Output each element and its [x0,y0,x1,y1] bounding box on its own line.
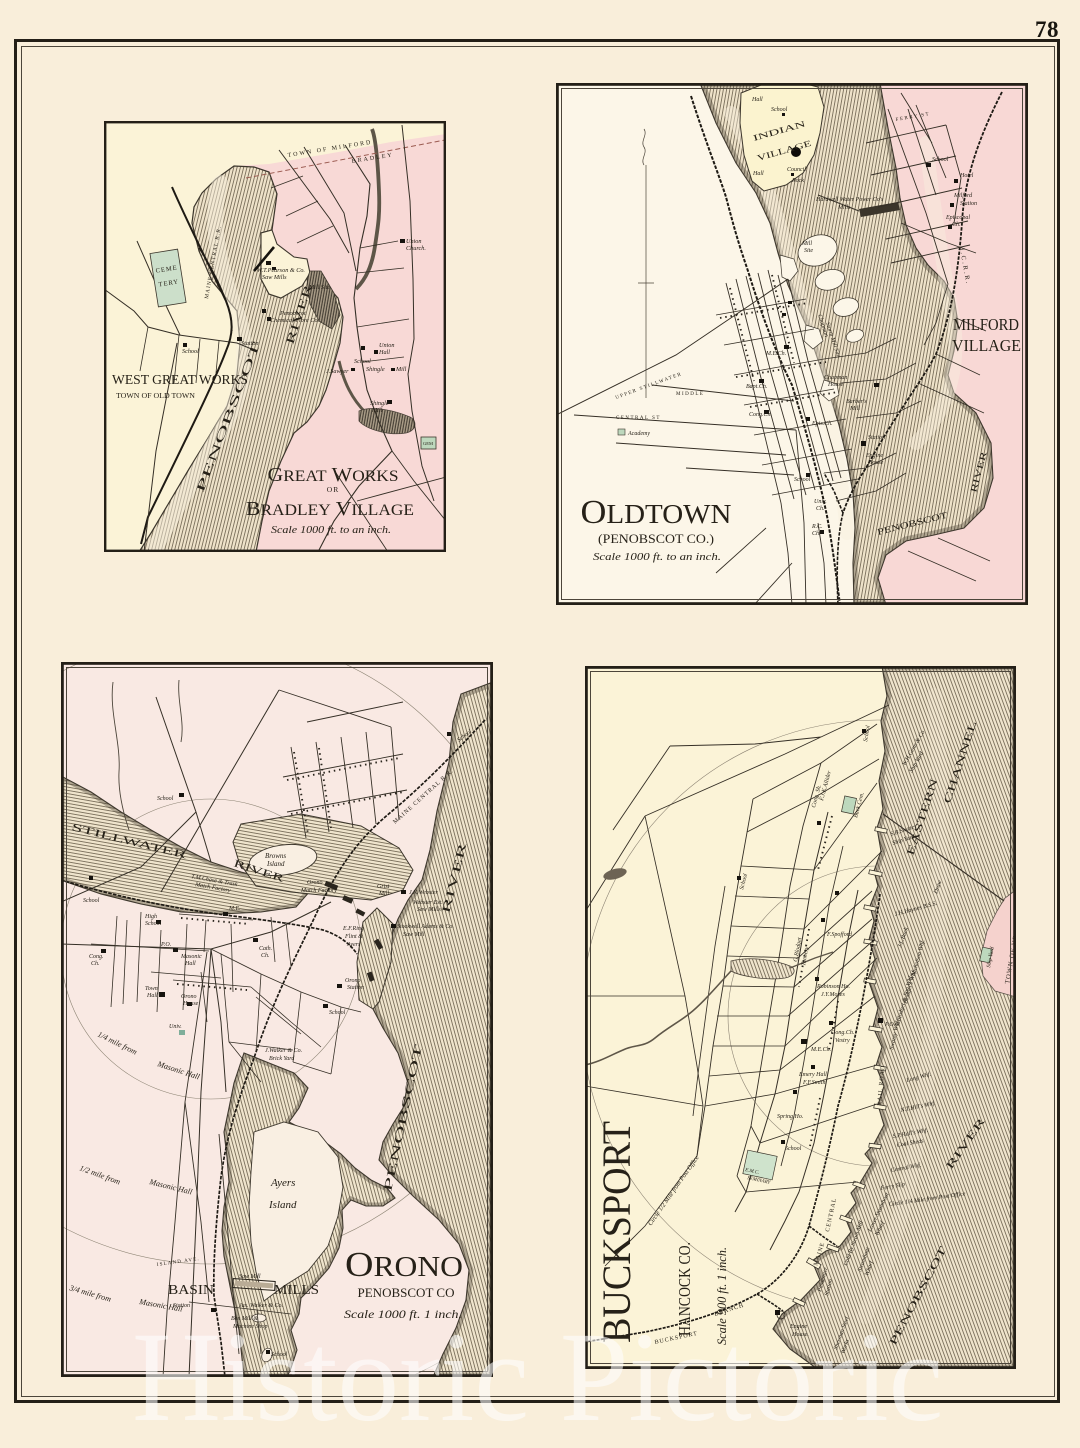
svg-text:Orono: Orono [307,880,322,886]
svg-text:Ch.: Ch. [261,953,270,959]
svg-text:(PENOBSCOT CO.): (PENOBSCOT CO.) [598,531,714,546]
svg-text:BRADLEY VILLAGE: BRADLEY VILLAGE [246,498,414,520]
svg-text:TOWN OF OLD TOWN: TOWN OF OLD TOWN [116,392,195,400]
svg-text:GEM: GEM [423,441,433,446]
svg-text:School: School [771,107,788,113]
svg-text:Vestry: Vestry [835,1038,850,1044]
svg-text:Chemical Fibre Co.: Chemical Fibre Co. [270,317,319,324]
svg-text:Ch.: Ch. [816,506,825,512]
svg-text:R.C.: R.C. [811,524,823,530]
svg-text:Cong.Ch.: Cong.Ch. [749,412,772,418]
svg-text:Station: Station [960,201,977,207]
svg-text:Ayers: Ayers [346,942,361,948]
svg-text:J.K.Webster: J.K.Webster [409,890,438,896]
svg-text:Cong.: Cong. [89,954,104,960]
svg-text:Hall: Hall [184,961,196,967]
svg-text:House: House [182,1001,199,1007]
svg-text:GREAT WORKS: GREAT WORKS [268,465,399,486]
svg-text:F.F.Smith: F.F.Smith [802,1080,825,1086]
svg-text:School: School [83,898,100,904]
svg-text:Hall: Hall [146,993,158,999]
svg-text:High: High [144,914,157,920]
svg-text:Grist: Grist [377,884,390,890]
svg-text:Orono: Orono [345,978,360,984]
svg-text:Island: Island [268,1199,297,1211]
svg-text:Mill: Mill [801,241,812,247]
svg-text:Penobscot: Penobscot [279,310,306,317]
svg-text:House: House [867,460,884,466]
svg-text:P.O.: P.O. [884,1022,895,1028]
svg-text:W.T.Pearson & Co.: W.T.Pearson & Co. [257,267,305,274]
svg-text:Saw Mills: Saw Mills [262,274,287,281]
svg-text:Match Factory: Match Factory [300,888,337,894]
svg-text:M.E.Ch.: M.E.Ch. [765,351,786,357]
svg-text:School: School [182,348,199,355]
svg-text:Rock: Rock [791,178,804,184]
svg-text:School: School [785,1146,802,1152]
svg-text:CENTRAL ST: CENTRAL ST [616,416,661,421]
svg-text:Webster Est.: Webster Est. [413,900,443,906]
svg-text:OR: OR [327,485,339,494]
svg-text:Academy: Academy [627,431,650,437]
svg-text:Hall: Hall [752,171,764,177]
svg-text:Church.: Church. [406,245,426,252]
svg-text:Univ.: Univ. [814,499,827,505]
svg-text:Spring Ho.: Spring Ho. [777,1114,803,1120]
svg-text:Mill: Mill [378,891,389,897]
svg-text:Flint &: Flint & [344,934,363,940]
svg-text:MIDDLE: MIDDLE [676,392,704,397]
svg-text:Station: Station [868,435,885,441]
svg-text:School: School [145,921,162,927]
svg-text:School: School [329,1010,346,1016]
svg-text:Saw Mill: Saw Mill [403,932,425,938]
svg-text:Ch.: Ch. [91,961,100,967]
svg-text:Stockwell Adams & Co.: Stockwell Adams & Co. [397,924,454,930]
svg-text:Union: Union [406,238,421,245]
svg-text:Ayers: Ayers [270,1177,295,1189]
svg-text:Orono: Orono [181,994,196,1000]
svg-text:Epis.Ch.: Epis.Ch. [811,421,833,427]
svg-text:House: House [827,382,844,388]
svg-text:Town: Town [145,986,158,992]
svg-text:School: School [354,358,371,365]
svg-text:Shingle: Shingle [370,400,389,407]
svg-text:Gong.Ch.: Gong.Ch. [831,1030,854,1036]
svg-text:Barber's: Barber's [846,399,867,405]
svg-text:M.E.Ch.: M.E.Ch. [810,1047,831,1053]
svg-text:Episcopal: Episcopal [945,215,970,221]
svg-text:Engine: Engine [865,453,883,459]
svg-text:Saw Mills: Saw Mills [417,907,442,913]
svg-text:Hall: Hall [378,349,390,356]
svg-text:Ch.: Ch. [812,531,821,537]
svg-text:Chapman: Chapman [824,375,847,381]
svg-text:J.Sawyer: J.Sawyer [326,368,349,375]
svg-text:School: School [794,477,811,483]
svg-text:OLDTOWN: OLDTOWN [581,494,732,531]
svg-text:E.F.Ring: E.F.Ring [342,926,364,932]
svg-text:J.Y.Moses: J.Y.Moses [821,992,845,998]
svg-text:M.E.: M.E. [228,906,241,912]
svg-text:Emery Hall: Emery Hall [798,1072,827,1078]
svg-text:Station: Station [347,985,364,991]
svg-text:Mills: Mills [837,205,851,211]
svg-text:Milford: Milford [953,192,973,199]
svg-text:Island: Island [266,860,285,868]
svg-text:Station: Station [241,340,259,347]
svg-text:P.O.: P.O. [160,942,171,948]
svg-text:Council: Council [787,167,806,173]
svg-text:Masonic: Masonic [180,954,202,960]
svg-text:F.Spofford: F.Spofford [826,931,853,938]
svg-text:Mill: Mill [395,366,407,373]
svg-text:Bapt.Ch.: Bapt.Ch. [746,384,767,390]
svg-text:School: School [932,157,949,163]
svg-text:Mill Site: Mill Site [308,284,330,291]
svg-text:Cath.: Cath. [259,946,272,952]
svg-text:Hall: Hall [751,97,763,103]
svg-text:Univ.: Univ. [169,1024,182,1030]
svg-text:Scale 1000 ft. to an inch.: Scale 1000 ft. to an inch. [593,551,721,563]
svg-text:Site: Site [804,248,813,254]
svg-text:Shingle: Shingle [366,366,385,373]
svg-text:PENOBSCOT CO: PENOBSCOT CO [358,1286,455,1300]
svg-text:Mill: Mill [849,406,860,412]
svg-text:Saw Mill: Saw Mill [239,1274,261,1280]
svg-text:MILLS: MILLS [274,1283,319,1298]
svg-text:VILLAGE: VILLAGE [952,336,1021,355]
svg-text:Browns: Browns [265,852,286,860]
svg-text:BASIN: BASIN [168,1283,214,1298]
svg-text:Ch.: Ch. [952,222,961,228]
svg-text:Scale 1000 ft. to an inch.: Scale 1000 ft. to an inch. [271,525,391,536]
svg-text:Robinson Ho.: Robinson Ho. [816,984,850,990]
svg-text:Brick Yard: Brick Yard [269,1056,295,1062]
svg-text:Mill: Mill [371,407,383,414]
svg-text:Hardwell Water Power Co's: Hardwell Water Power Co's [815,197,884,203]
svg-text:Union: Union [379,342,394,349]
svg-text:MILFORD: MILFORD [953,315,1019,334]
svg-text:School: School [157,796,174,802]
svg-text:Hotel: Hotel [959,173,974,179]
svg-text:WEST GREAT WORKS: WEST GREAT WORKS [112,373,248,388]
svg-text:J.Walker & Co.: J.Walker & Co. [265,1048,302,1054]
